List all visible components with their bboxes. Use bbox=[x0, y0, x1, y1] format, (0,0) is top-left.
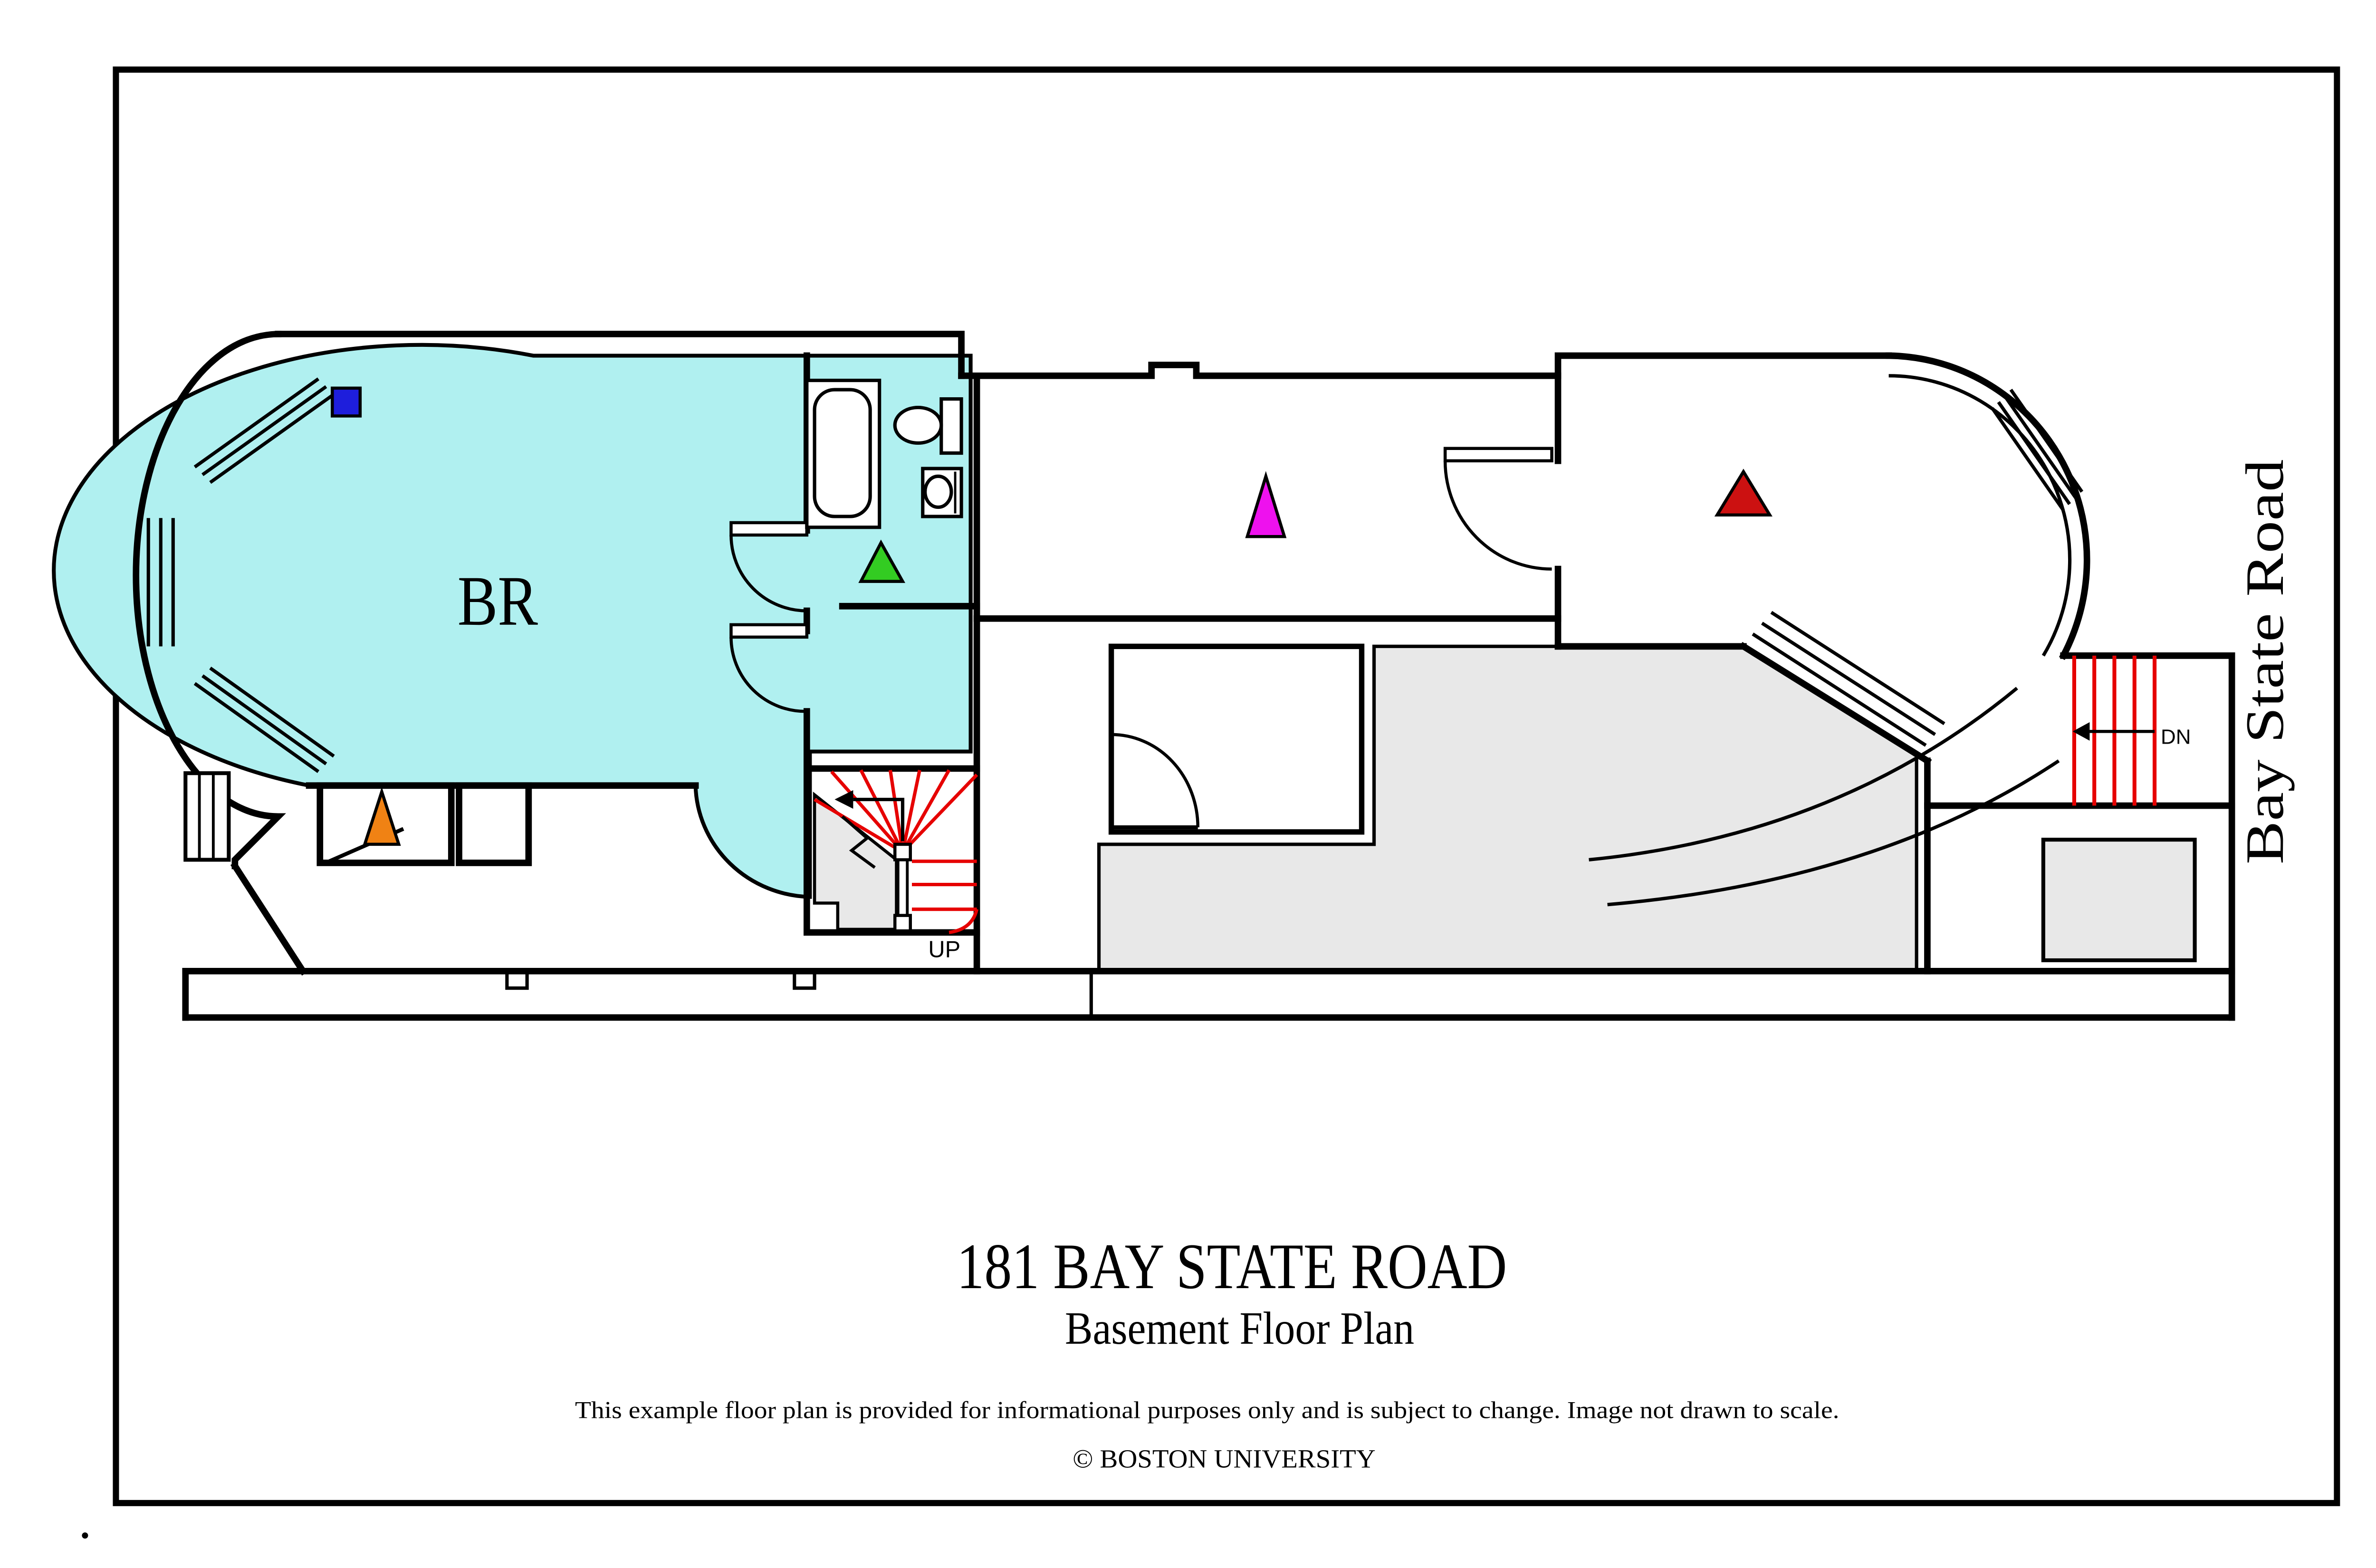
plan-title: 181 BAY STATE ROAD bbox=[957, 1230, 1507, 1302]
marker-blue-square bbox=[332, 388, 360, 416]
floor-plan-canvas: UP DN BR Bay State Road 181 BAY STATE RO… bbox=[0, 0, 2376, 1568]
side-window-box bbox=[185, 773, 229, 860]
newel-post-upper bbox=[895, 844, 910, 860]
stairs-down-label: DN bbox=[2161, 725, 2191, 748]
sink-basin bbox=[925, 476, 951, 507]
storage-room bbox=[1111, 646, 1362, 832]
street-label: Bay State Road bbox=[2235, 459, 2295, 865]
bathtub-basin bbox=[814, 390, 870, 516]
unexcavated-southeast bbox=[2043, 840, 2195, 960]
plan-copyright: © BOSTON UNIVERSITY bbox=[1073, 1444, 1375, 1473]
toilet-tank bbox=[941, 399, 961, 453]
stairs-up-label: UP bbox=[928, 937, 960, 962]
bedroom-label: BR bbox=[458, 562, 538, 641]
stray-dot bbox=[82, 1532, 88, 1539]
plan-disclaimer: This example floor plan is provided for … bbox=[575, 1396, 1839, 1423]
toilet-bowl bbox=[895, 408, 941, 443]
plan-subtitle: Basement Floor Plan bbox=[1065, 1303, 1414, 1354]
newel-post-lower bbox=[895, 916, 910, 931]
